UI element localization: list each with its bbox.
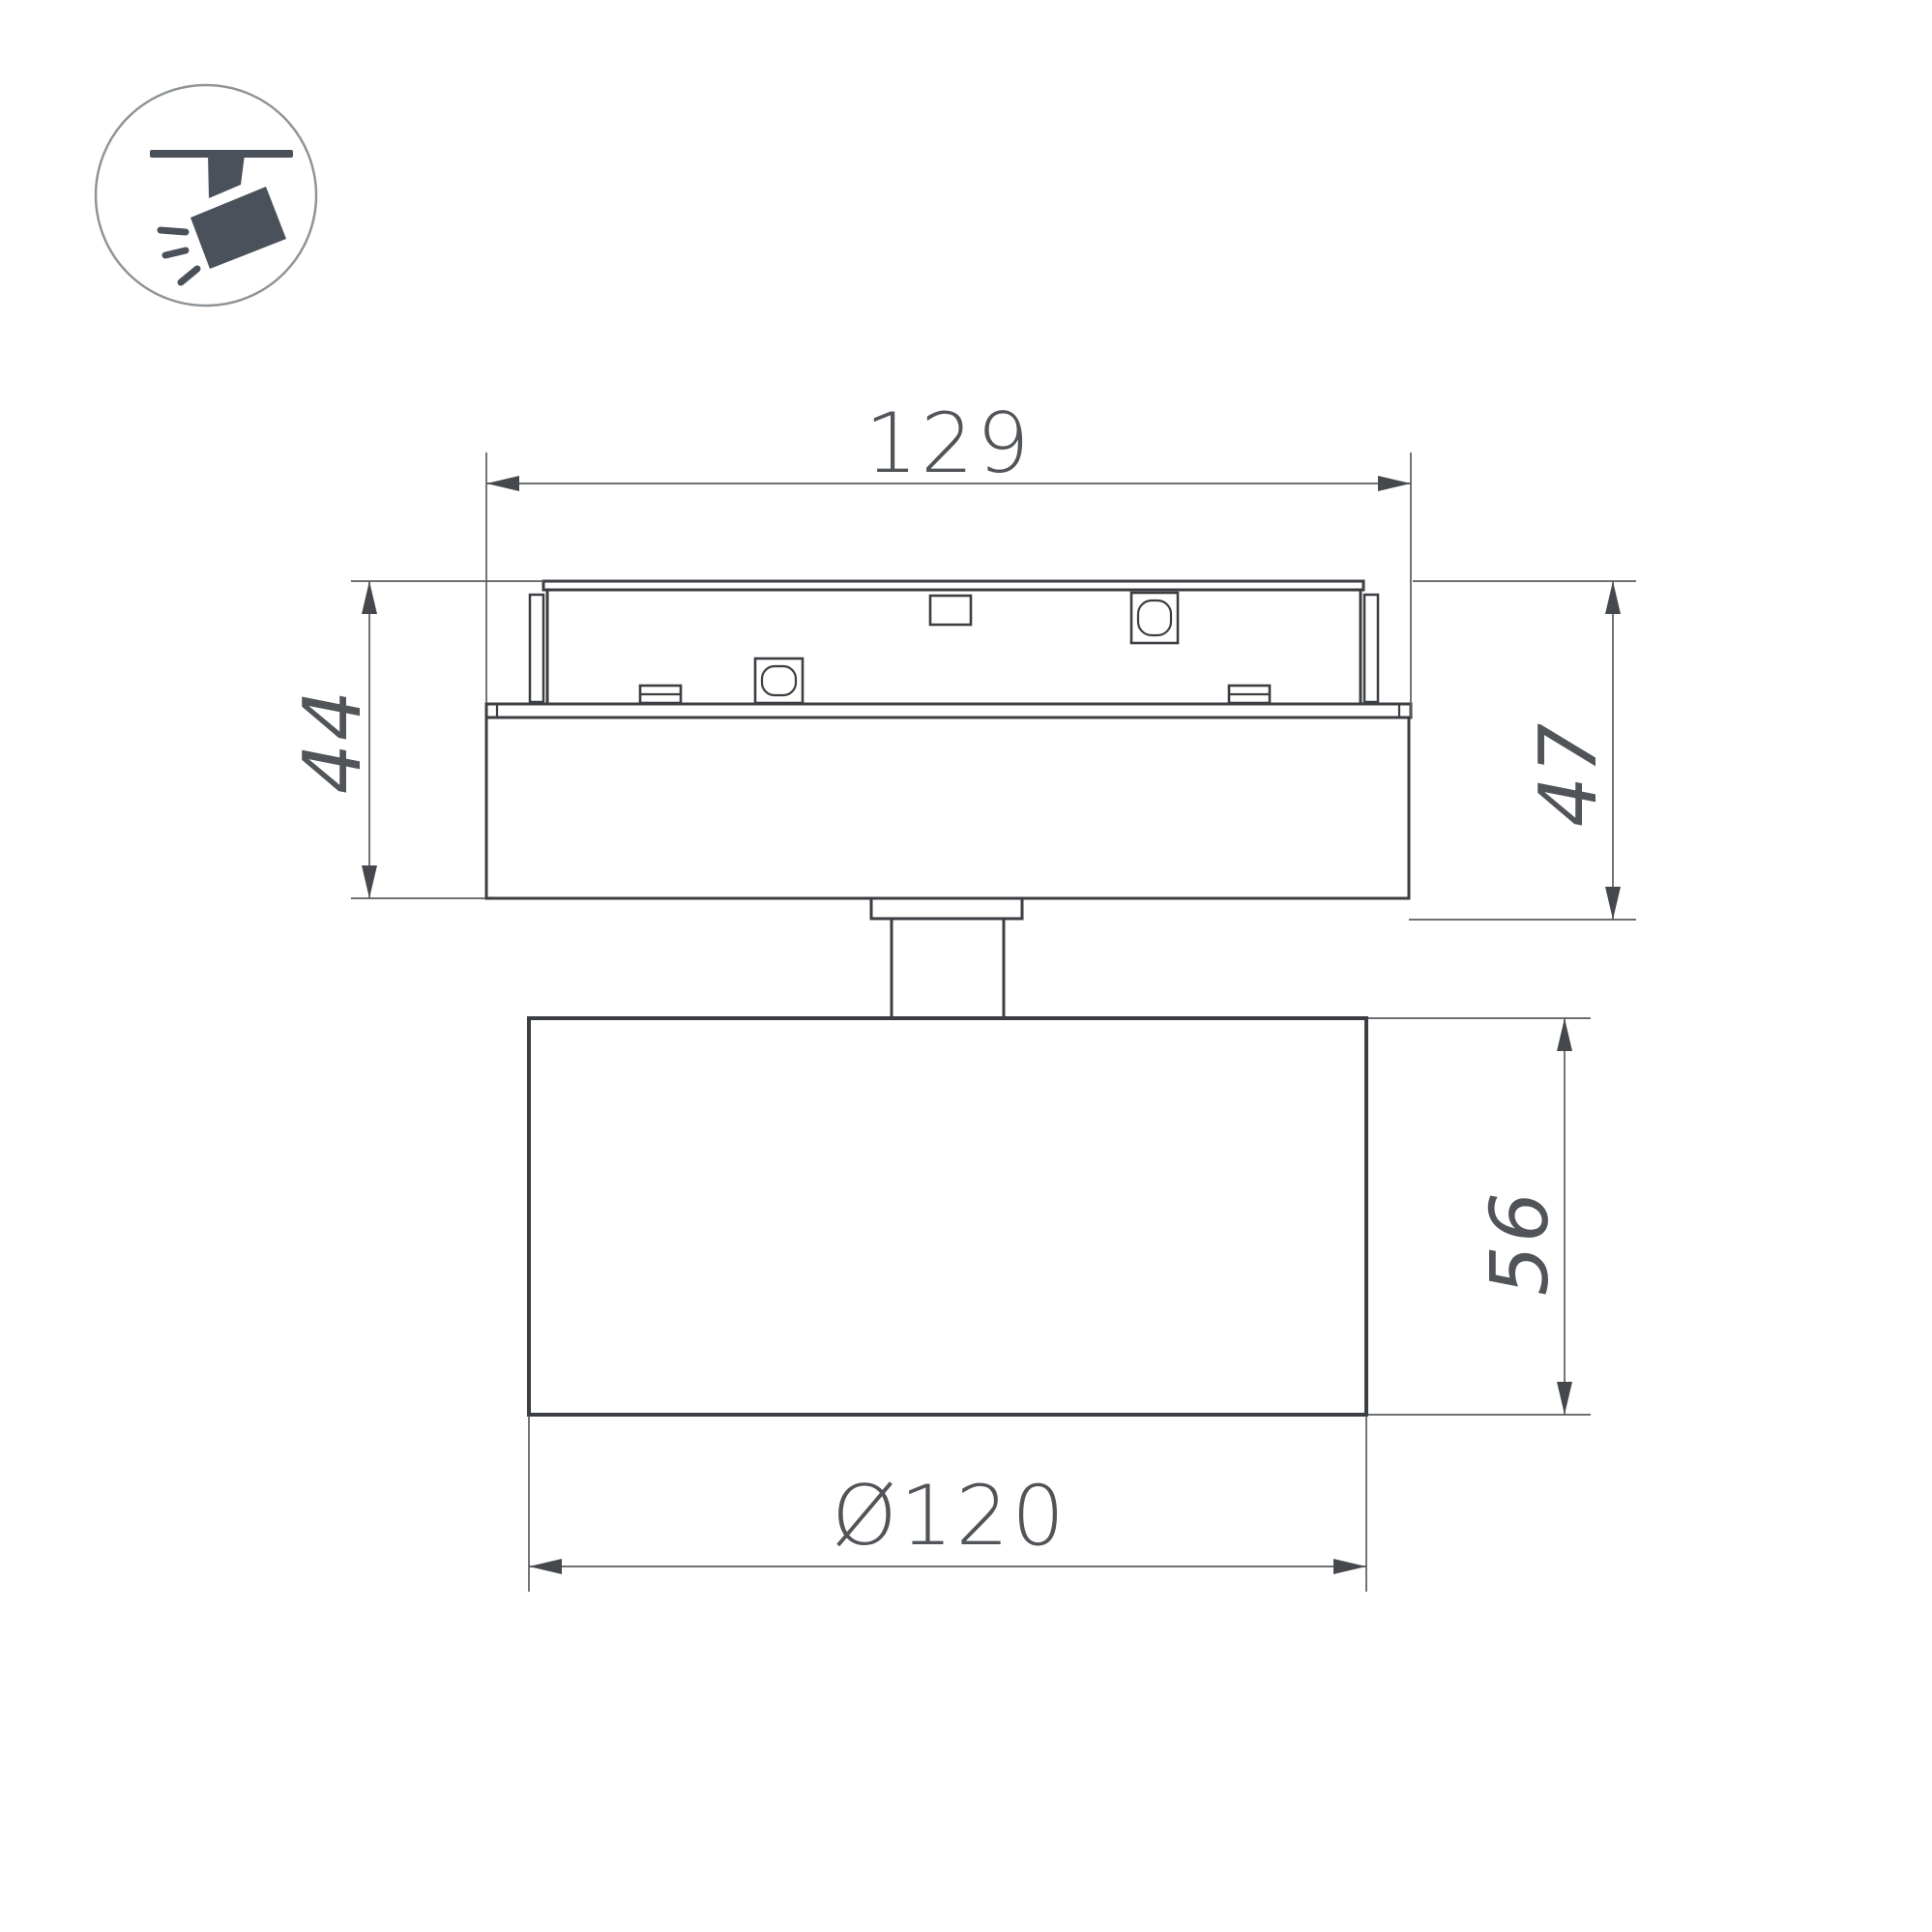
icon-light-ray: [165, 250, 186, 255]
dimension-overall-height: 47: [1409, 581, 1636, 920]
arrowhead-left: [486, 476, 519, 491]
dimension-label-44: 44: [287, 688, 379, 794]
arrowhead-down: [362, 865, 377, 898]
pivot-flange: [871, 898, 1022, 919]
arrowhead-up: [1557, 1018, 1572, 1051]
dimension-head-diameter: Ø120: [529, 1416, 1366, 1592]
cutout-rectangular: [930, 596, 971, 625]
technical-drawing-page: 129 44 47 56: [0, 0, 1932, 1932]
dimension-label-129: 129: [864, 395, 1032, 492]
dimension-label-56: 56: [1475, 1189, 1566, 1296]
cutout-rounded-upper-right: [1131, 593, 1178, 643]
adapter-lip: [486, 704, 1411, 717]
arrowhead-down: [1605, 887, 1621, 920]
spring-clip-right: [1364, 595, 1378, 702]
dimension-label-47: 47: [1523, 720, 1615, 827]
arrowhead-right: [1333, 1559, 1366, 1574]
cutout-rounded-lower-left: [755, 659, 803, 703]
arrowhead-left: [529, 1559, 562, 1574]
arrowhead-up: [1605, 581, 1621, 614]
arrowhead-up: [362, 581, 377, 614]
pivot-stem: [892, 919, 1004, 1018]
icon-light-ray: [161, 230, 186, 232]
fixture-drawing: [486, 581, 1411, 1415]
track-spotlight-icon: [96, 85, 316, 306]
vent-slot-right: [1229, 686, 1270, 703]
lamp-head: [529, 1018, 1366, 1415]
technical-drawing-canvas: 129 44 47 56: [0, 0, 1932, 1932]
spring-clip-left: [530, 595, 543, 702]
main-housing-body: [486, 717, 1409, 898]
dimension-label-diameter-120: Ø120: [832, 1468, 1068, 1565]
arrowhead-right: [1378, 476, 1411, 491]
icon-circle-outline: [96, 85, 316, 306]
dimension-head-height: 56: [1368, 1018, 1591, 1415]
vent-slot-left: [640, 686, 681, 703]
arrowhead-down: [1557, 1382, 1572, 1415]
